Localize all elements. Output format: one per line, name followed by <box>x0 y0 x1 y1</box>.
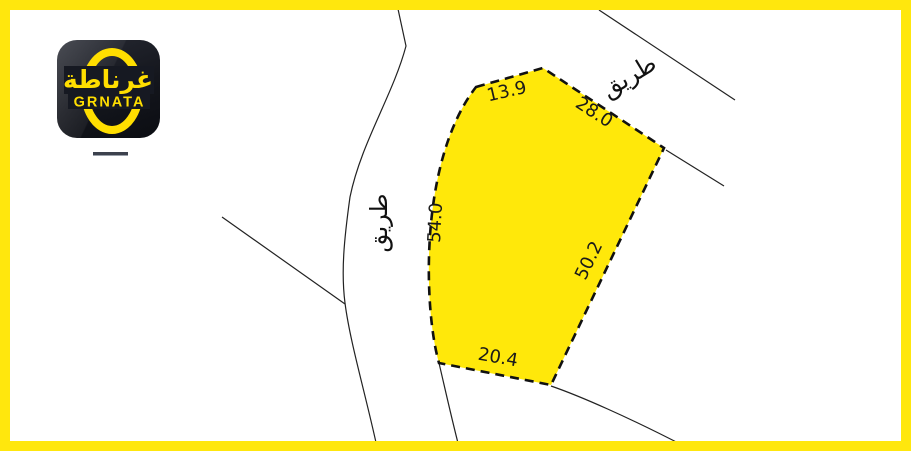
logo-arabic-wordmark: غرناطة <box>63 65 153 95</box>
grnata-logo-art: غرناطة GRNATA <box>57 40 160 138</box>
logo-latin-wordmark: GRNATA <box>74 95 146 111</box>
road-line-south-left <box>439 363 459 447</box>
road-line-south-right <box>551 386 686 447</box>
land-plot-map: 13.9 28.0 54.0 50.2 20.4 طريق طريق غرناط… <box>0 0 911 451</box>
road-line-northeast-lower <box>666 150 724 186</box>
land-plot-polygon <box>429 68 664 385</box>
dimension-label-left: 54.0 <box>424 202 447 243</box>
road-line-southwest-branch <box>222 217 345 304</box>
grnata-logo: غرناطة GRNATA <box>57 40 160 138</box>
road-name-west: طريق <box>365 193 393 252</box>
road-name-northeast: طريق <box>596 49 661 103</box>
logo-underline-rule <box>93 152 128 156</box>
